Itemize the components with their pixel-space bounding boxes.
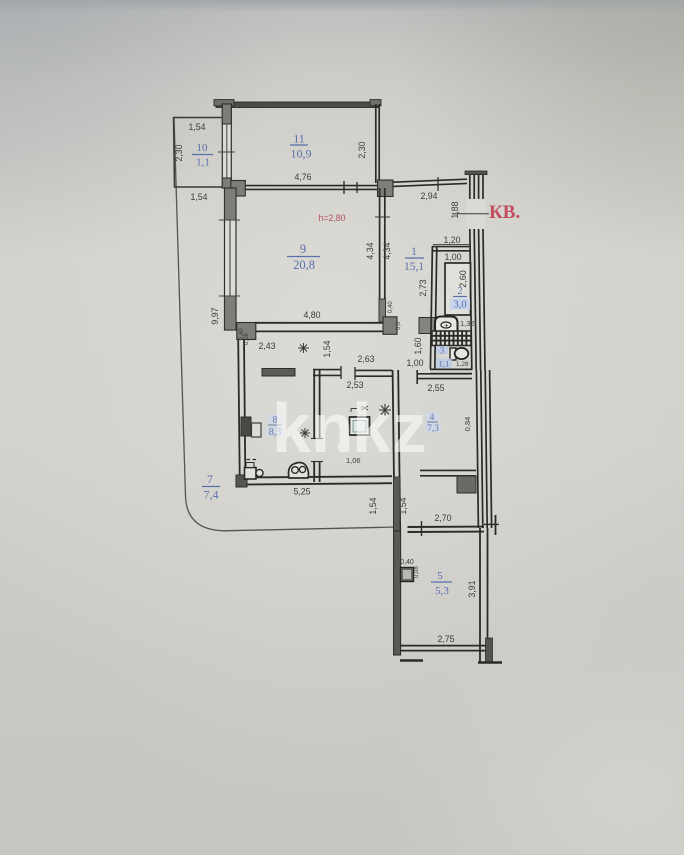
svg-text:1: 1 xyxy=(411,246,417,258)
svg-text:4,76: 4,76 xyxy=(294,172,311,182)
svg-text:3: 3 xyxy=(440,346,445,356)
svg-text:1,32: 1,32 xyxy=(460,319,475,328)
svg-text:15,1: 15,1 xyxy=(404,261,424,273)
svg-text:1,20: 1,20 xyxy=(443,235,460,245)
svg-text:4,80: 4,80 xyxy=(303,310,320,320)
svg-text:7,3: 7,3 xyxy=(427,424,439,434)
svg-text:0,08: 0,08 xyxy=(414,566,420,578)
svg-text:10,9: 10,9 xyxy=(291,147,312,161)
svg-text:1,54: 1,54 xyxy=(398,497,408,514)
svg-text:2,70: 2,70 xyxy=(434,513,451,523)
svg-text:1,60: 1,60 xyxy=(413,337,423,354)
svg-text:11: 11 xyxy=(293,132,305,146)
svg-text:5,25: 5,25 xyxy=(293,487,310,497)
svg-text:2,55: 2,55 xyxy=(427,383,444,393)
svg-text:1,00: 1,00 xyxy=(406,358,423,368)
svg-text:9: 9 xyxy=(300,242,306,256)
svg-text:1,54: 1,54 xyxy=(368,497,378,514)
svg-text:1,1: 1,1 xyxy=(439,359,450,369)
svg-text:3,91: 3,91 xyxy=(467,580,477,597)
svg-text:КВ.: КВ. xyxy=(489,202,520,223)
svg-text:20,8: 20,8 xyxy=(293,258,315,272)
svg-text:1,54: 1,54 xyxy=(188,122,205,132)
svg-text:2,30: 2,30 xyxy=(174,144,184,161)
svg-text:4,34: 4,34 xyxy=(382,242,392,259)
svg-text:1,54: 1,54 xyxy=(322,340,332,357)
svg-text:9,97: 9,97 xyxy=(210,307,220,324)
svg-text:7,4: 7,4 xyxy=(204,488,219,502)
svg-text:1,88: 1,88 xyxy=(450,201,460,218)
svg-text:10: 10 xyxy=(197,142,209,154)
svg-text:1,00: 1,00 xyxy=(444,252,461,262)
svg-text:2,94: 2,94 xyxy=(420,191,437,201)
svg-text:2,30: 2,30 xyxy=(357,141,367,158)
svg-text:2,60: 2,60 xyxy=(458,270,468,288)
svg-text:2,75: 2,75 xyxy=(437,634,454,644)
svg-text:5: 5 xyxy=(437,570,443,582)
svg-text:0,84: 0,84 xyxy=(463,417,472,432)
svg-text:kn: kn xyxy=(272,389,354,467)
svg-text:5,3: 5,3 xyxy=(435,585,449,597)
svg-text:kz: kz xyxy=(352,389,428,467)
svg-text:2,63: 2,63 xyxy=(357,354,374,364)
svg-text:7: 7 xyxy=(207,472,213,486)
svg-text:h=2,80: h=2,80 xyxy=(318,213,345,223)
svg-text:2,43: 2,43 xyxy=(258,341,275,351)
svg-text:4,34: 4,34 xyxy=(365,242,375,259)
svg-text:0,40: 0,40 xyxy=(388,301,394,313)
svg-text:0,40: 0,40 xyxy=(400,559,414,566)
svg-text:3,0: 3,0 xyxy=(453,300,466,311)
svg-text:1,28: 1,28 xyxy=(456,361,469,368)
svg-text:2,73: 2,73 xyxy=(418,279,428,296)
svg-text:1,1: 1,1 xyxy=(196,157,210,169)
svg-text:0,0: 0,0 xyxy=(396,321,402,330)
svg-text:1,54: 1,54 xyxy=(190,192,207,202)
